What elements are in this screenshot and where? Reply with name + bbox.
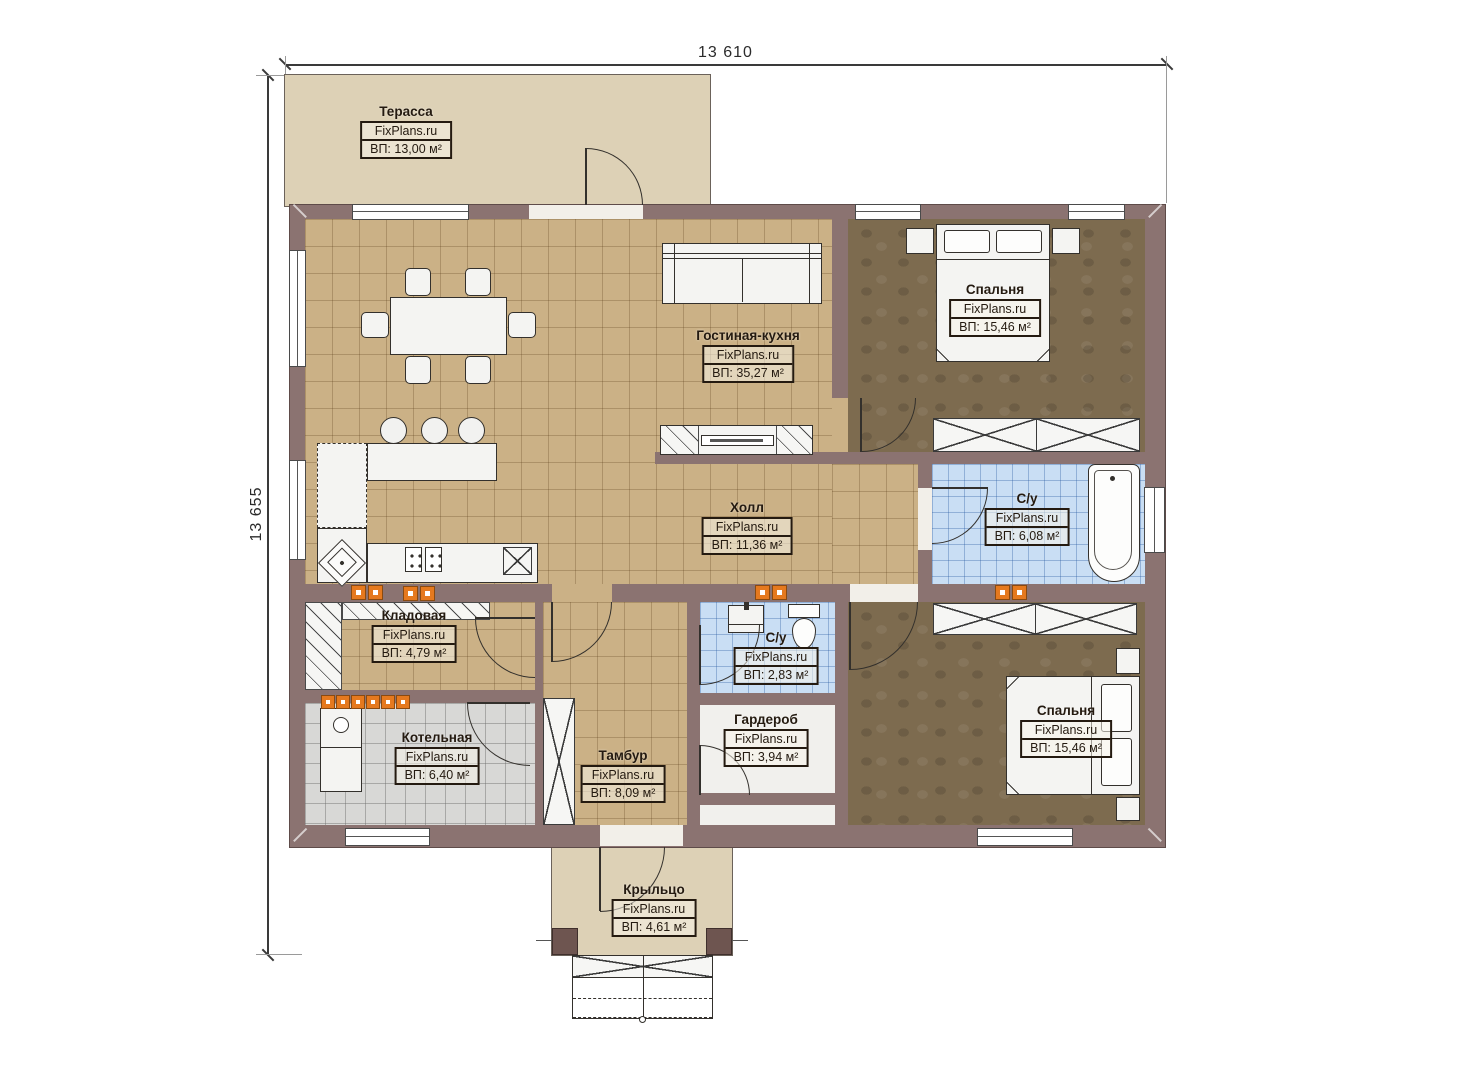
pillow [996, 230, 1042, 253]
oven-icon [425, 547, 442, 572]
wall-bedroom1-bath [848, 452, 1145, 464]
kitchen-cabinet [317, 443, 367, 528]
window [289, 460, 306, 560]
top-dimension-label: 13 610 [698, 44, 753, 62]
room-name: С/у [734, 630, 819, 645]
left-dimension-line [267, 75, 269, 955]
wall-tambour-bath2 [687, 602, 700, 625]
extension-line [536, 940, 552, 941]
room-area: ВП: 4,79 м² [374, 643, 455, 661]
porch-column [706, 928, 732, 955]
storage-shelf [305, 602, 342, 690]
mid-wall-center [612, 584, 850, 602]
wall-tambour-bath2 [687, 688, 700, 745]
chair [465, 356, 491, 384]
room-label-bedroom1: Спальня FixPlans.ru ВП: 15,46 м² [949, 282, 1041, 337]
extension-line [732, 940, 748, 941]
extension-line [256, 954, 302, 955]
room-name: Гардероб [724, 712, 809, 727]
front-door-threshold [600, 825, 683, 846]
room-name: Тамбур [581, 748, 666, 763]
room-name: Спальня [949, 282, 1041, 297]
wall-storage-tambour [535, 678, 543, 825]
room-area: ВП: 3,94 м² [726, 747, 807, 765]
watermark: FixPlans.ru [397, 749, 478, 765]
room-area: ВП: 13,00 м² [362, 139, 450, 157]
left-dimension-label: 13 655 [248, 479, 266, 549]
tambour-closet [543, 698, 575, 825]
radiator-icon [397, 696, 409, 708]
room-area: ВП: 35,27 м² [704, 363, 792, 381]
steps-center-line [643, 956, 644, 1018]
extension-line [1166, 56, 1167, 203]
extension-line [256, 75, 288, 76]
nightstand [906, 228, 934, 254]
stove-icon [405, 547, 422, 572]
mid-wall-east [918, 584, 1145, 602]
room-label-porch: Крыльцо FixPlans.ru ВП: 4,61 м² [612, 882, 697, 937]
room-name: С/у [985, 491, 1070, 506]
chair [465, 268, 491, 296]
sofa [662, 243, 822, 304]
porch-column [552, 928, 578, 955]
radiator-icon [337, 696, 349, 708]
window [977, 828, 1073, 846]
room-area: ВП: 6,40 м² [397, 765, 478, 783]
watermark: FixPlans.ru [951, 301, 1039, 317]
room-name: Кладовая [372, 608, 457, 623]
room-label-bedroom2: Спальня FixPlans.ru ВП: 15,46 м² [1020, 703, 1112, 758]
wall-hall-bath-jamb [918, 550, 932, 584]
room-label-boiler: Котельная FixPlans.ru ВП: 6,40 м² [395, 730, 480, 785]
top-dimension-line [285, 64, 1167, 66]
watermark: FixPlans.ru [614, 901, 695, 917]
tambour-opening [552, 584, 612, 602]
terrace-area [285, 75, 710, 206]
floor-plan: 13 610 13 655 [0, 0, 1473, 1080]
bath1-door-threshold [918, 488, 932, 550]
radiator-icon [369, 586, 382, 599]
bedroom2-door-threshold [850, 584, 918, 602]
bedroom1-door-threshold [832, 398, 848, 452]
bar-stool [458, 417, 485, 444]
room-label-bathroom1: С/у FixPlans.ru ВП: 6,08 м² [985, 491, 1070, 546]
room-name: Холл [702, 500, 793, 515]
watermark: FixPlans.ru [362, 123, 450, 139]
tv-stand [660, 425, 813, 455]
watermark: FixPlans.ru [374, 627, 455, 643]
radiator-icon [352, 696, 364, 708]
terrace-door-threshold [529, 205, 643, 219]
extension-line [285, 56, 286, 76]
chair [405, 356, 431, 384]
window [855, 204, 921, 220]
radiator-icon [421, 587, 434, 600]
room-name: Котельная [395, 730, 480, 745]
nightstand [1052, 228, 1080, 254]
tambour-side-floor [700, 805, 835, 825]
radiator-icon [404, 587, 417, 600]
room-label-tambour: Тамбур FixPlans.ru ВП: 8,09 м² [581, 748, 666, 803]
radiator-icon [996, 586, 1009, 599]
watermark: FixPlans.ru [583, 767, 664, 783]
wall-hall-bath-jamb [918, 464, 932, 488]
wall-bath2-wardrobe [700, 693, 835, 705]
bar-counter [367, 443, 497, 481]
radiator-icon [322, 696, 334, 708]
radiator-icon [756, 586, 769, 599]
room-label-terrace: Терасса FixPlans.ru ВП: 13,00 м² [360, 104, 452, 159]
room-area: ВП: 4,61 м² [614, 917, 695, 935]
boiler-unit [320, 708, 362, 792]
wall-storage-tambour [535, 602, 543, 618]
window [1068, 204, 1125, 220]
chair [508, 312, 536, 338]
room-area: ВП: 8,09 м² [583, 783, 664, 801]
dining-table [390, 297, 507, 355]
kitchen-sink-icon [503, 547, 532, 575]
wall-living-bedroom1 [832, 219, 848, 398]
chair [361, 312, 389, 338]
watermark: FixPlans.ru [987, 510, 1068, 526]
room-area: ВП: 6,08 м² [987, 526, 1068, 544]
room-name: Гостиная-кухня [696, 328, 799, 343]
room-area: ВП: 15,46 м² [951, 317, 1039, 335]
room-name: Спальня [1020, 703, 1112, 718]
radiator-icon [352, 586, 365, 599]
room-name: Терасса [360, 104, 452, 119]
porch-steps [572, 955, 713, 1019]
room-label-storage: Кладовая FixPlans.ru ВП: 4,79 м² [372, 608, 457, 663]
room-area: ВП: 15,46 м² [1022, 738, 1110, 756]
watermark: FixPlans.ru [704, 347, 792, 363]
room-label-living-kitchen: Гостиная-кухня FixPlans.ru ВП: 35,27 м² [696, 328, 799, 383]
wardrobe [933, 603, 1137, 635]
wall-tambour-bath2 [687, 795, 700, 825]
window [352, 204, 469, 220]
watermark: FixPlans.ru [1022, 722, 1110, 738]
radiator-icon [773, 586, 786, 599]
bar-stool [421, 417, 448, 444]
wardrobe [933, 418, 1140, 452]
room-area: ВП: 11,36 м² [704, 535, 791, 553]
steps-marker [639, 1016, 646, 1023]
watermark: FixPlans.ru [704, 519, 791, 535]
pillow [944, 230, 990, 253]
window [289, 250, 306, 367]
chair [405, 268, 431, 296]
nightstand [1116, 648, 1140, 674]
room-label-bathroom2: С/у FixPlans.ru ВП: 2,83 м² [734, 630, 819, 685]
room-label-wardrobe: Гардероб FixPlans.ru ВП: 3,94 м² [724, 712, 809, 767]
window [1144, 487, 1165, 553]
wall-wardrobe-bedroom2 [835, 602, 848, 825]
hall-floor [832, 464, 918, 584]
bathtub [1088, 464, 1140, 582]
nightstand [1116, 797, 1140, 821]
room-name: Крыльцо [612, 882, 697, 897]
room-label-hall: Холл FixPlans.ru ВП: 11,36 м² [702, 500, 793, 555]
window [345, 828, 430, 846]
room-area: ВП: 2,83 м² [736, 665, 817, 683]
radiator-icon [382, 696, 394, 708]
watermark: FixPlans.ru [736, 649, 817, 665]
watermark: FixPlans.ru [726, 731, 807, 747]
bar-stool [380, 417, 407, 444]
radiator-icon [1013, 586, 1026, 599]
tv-icon [701, 435, 774, 446]
radiator-icon [367, 696, 379, 708]
